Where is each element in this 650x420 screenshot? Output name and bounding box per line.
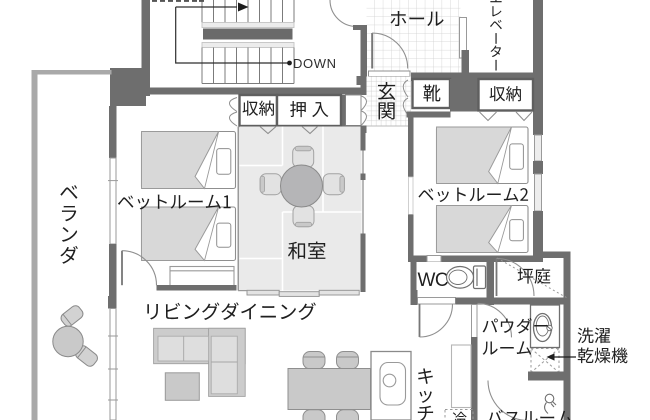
svg-text:WC: WC [418,270,449,291]
svg-text:DOWN: DOWN [293,56,337,71]
